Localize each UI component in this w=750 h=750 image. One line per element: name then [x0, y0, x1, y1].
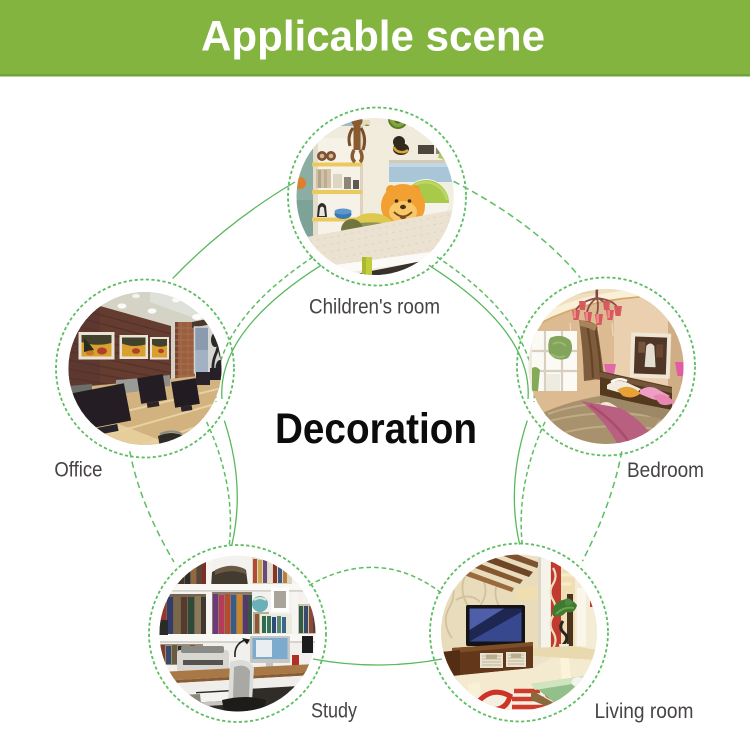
svg-text:Children's room: Children's room — [309, 296, 440, 319]
svg-text:Applicable scene: Applicable scene — [201, 13, 545, 61]
svg-text:Living room: Living room — [595, 700, 694, 723]
svg-text:Bedroom: Bedroom — [627, 459, 704, 482]
svg-text:Decoration: Decoration — [275, 405, 477, 453]
svg-text:Office: Office — [54, 459, 102, 482]
svg-text:Study: Study — [311, 700, 357, 723]
